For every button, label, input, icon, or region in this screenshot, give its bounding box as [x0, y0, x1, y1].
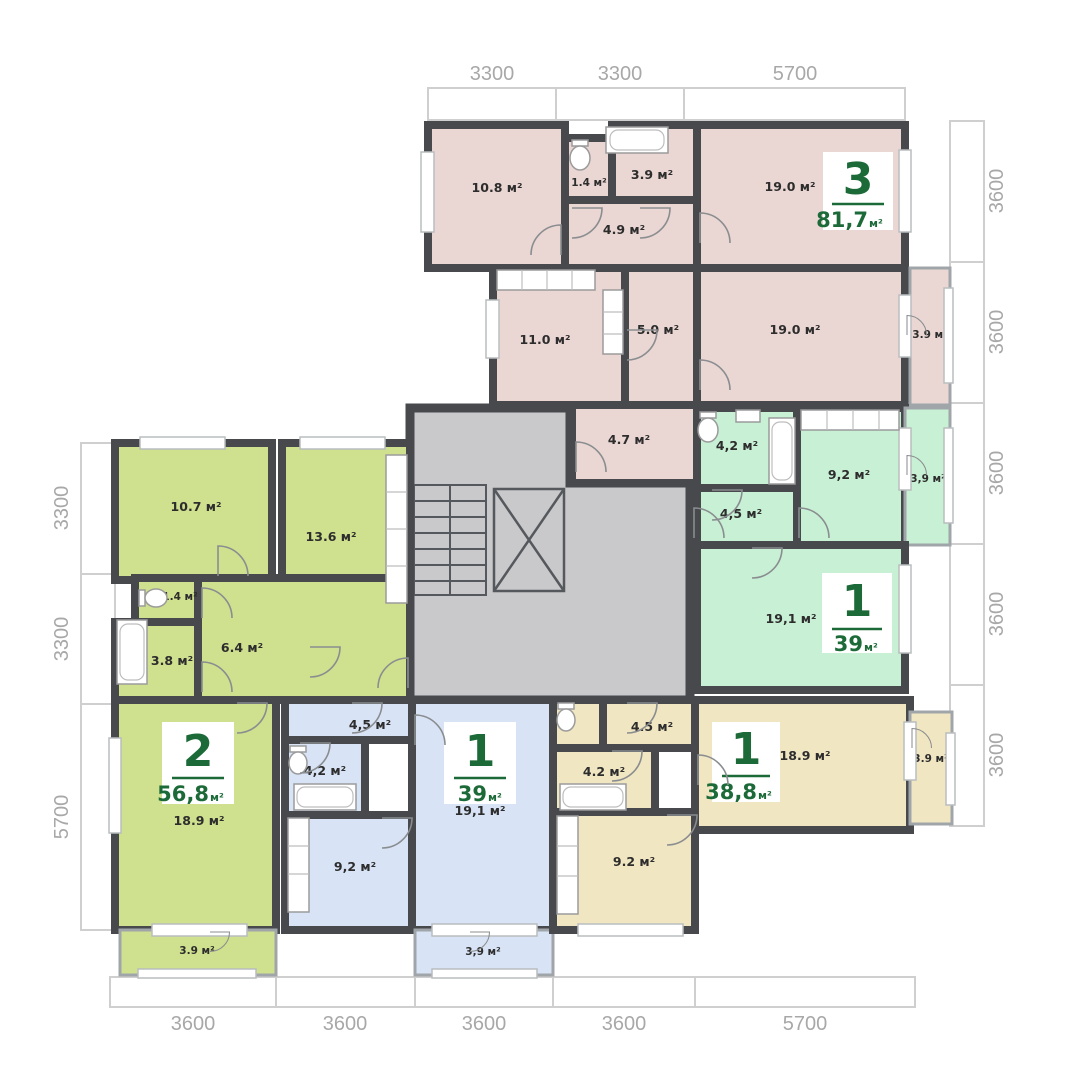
- toilet-icon: [557, 703, 575, 731]
- dimension-band-left: 3300 3300 5700: [51, 443, 115, 930]
- room-area-label: 3,9 м²: [910, 473, 946, 485]
- room-area-label: 3.9 м²: [179, 945, 215, 957]
- dim-band-rect: [428, 88, 905, 120]
- window-icon: [152, 924, 247, 936]
- dimension-label: 3600: [171, 1013, 216, 1035]
- room-area-label: 9,2 м²: [334, 859, 376, 874]
- bathtub-icon: [117, 620, 147, 684]
- room-area-label: 18.9 м²: [780, 748, 831, 763]
- room-area-label: 13.6 м²: [306, 529, 357, 544]
- sink-icon: [736, 410, 760, 422]
- apartment-badge: 1 38,8 м²: [705, 722, 780, 804]
- apartment-area: 56,8: [157, 782, 209, 806]
- room-area-label: 3.9 м²: [913, 753, 949, 765]
- bathtub-icon: [606, 127, 668, 153]
- kitchen-counter-icon: [801, 410, 899, 430]
- toilet-icon: [289, 746, 307, 774]
- apartment-number: 1: [731, 724, 762, 775]
- window-icon: [432, 924, 537, 936]
- bathtub-icon: [294, 784, 356, 810]
- apartment-number: 1: [842, 576, 873, 627]
- toilet-icon: [570, 140, 590, 170]
- window-icon: [578, 924, 683, 936]
- wardrobe-icon: [386, 455, 407, 603]
- dimension-label: 3300: [470, 63, 515, 85]
- dimension-label: 3600: [986, 310, 1008, 355]
- room-area-label: 18.9 м²: [174, 813, 225, 828]
- apartment-badge: 2 56,8 м²: [157, 722, 234, 806]
- dimension-band-right: 3600 3600 3600 3600 3600: [950, 121, 1008, 826]
- dimension-label: 3600: [986, 592, 1008, 637]
- room-area-label: 9.2 м²: [613, 854, 655, 869]
- kitchen-counter-icon: [557, 816, 578, 914]
- apartment-badge: 1 39 м²: [822, 573, 892, 656]
- bathtub-icon: [769, 418, 795, 484]
- room-area-label: 19,1 м²: [766, 611, 817, 626]
- window-icon: [944, 428, 953, 523]
- apartment-badge: 1 39 м²: [444, 722, 516, 806]
- window-icon: [109, 738, 121, 833]
- room-area-label: 4,2 м²: [716, 438, 758, 453]
- apartment-number: 1: [465, 726, 496, 777]
- floor-plan: 3300 3300 5700 3600 3600 3600 3600 3600 …: [0, 0, 1080, 1080]
- window-icon: [899, 428, 911, 490]
- room-area-label: 4,5 м²: [349, 717, 391, 732]
- room-area-label: 11.0 м²: [520, 332, 571, 347]
- room-area-label: 1.4 м²: [571, 177, 607, 189]
- room-rect: [428, 125, 565, 268]
- dimension-label: 5700: [51, 795, 73, 840]
- window-icon: [138, 969, 256, 978]
- apartment-area: 81,7: [816, 208, 868, 232]
- dimension-band-top: 3300 3300 5700: [428, 63, 905, 120]
- dim-band-rect: [81, 443, 115, 930]
- apartment-area-unit: м²: [869, 217, 883, 230]
- dim-band-rect: [950, 121, 984, 826]
- apartment-number: 2: [183, 726, 214, 777]
- window-icon: [421, 152, 434, 232]
- room-area-label: 3.8 м²: [151, 653, 193, 668]
- window-icon: [432, 969, 537, 978]
- dimension-label: 5700: [773, 63, 818, 85]
- dim-band-rect: [110, 977, 915, 1007]
- dimension-label: 3600: [602, 1013, 647, 1035]
- apartment-number: 3: [843, 154, 874, 205]
- kitchen-counter-icon: [288, 818, 309, 912]
- apartment-area-unit: м²: [758, 789, 772, 802]
- apartment-badge: 3 81,7 м²: [816, 152, 893, 232]
- room-area-label: 4,5 м²: [720, 506, 762, 521]
- dimension-label: 3600: [986, 451, 1008, 496]
- room-area-label: 3.9 м²: [631, 167, 673, 182]
- window-icon: [899, 565, 911, 653]
- dimension-label: 3600: [323, 1013, 368, 1035]
- apartment-area: 39: [834, 632, 863, 656]
- apartment-1-room-beige: 4.5 м² 4.2 м² 9.2 м² 18.9 м² 3.9 м² 1 38…: [553, 700, 952, 930]
- room-area-label: 9,2 м²: [828, 467, 870, 482]
- dimension-label: 3300: [51, 486, 73, 531]
- window-icon: [899, 295, 911, 357]
- room-area-label: 19.0 м²: [770, 322, 821, 337]
- window-icon: [899, 150, 911, 232]
- room-area-label: 4.9 м²: [603, 222, 645, 237]
- dimension-band-bottom: 3600 3600 3600 3600 5700: [110, 977, 915, 1035]
- room-area-label: 4.2 м²: [583, 764, 625, 779]
- room-area-label: 3.9 м²: [912, 329, 948, 341]
- dimension-label: 3600: [462, 1013, 507, 1035]
- toilet-icon: [698, 412, 718, 442]
- apartment-area: 38,8: [705, 780, 757, 804]
- room-rect: [565, 138, 612, 200]
- apartment-area-unit: м²: [488, 791, 502, 804]
- window-icon: [944, 288, 953, 383]
- apartment-area-unit: м²: [210, 791, 224, 804]
- window-icon: [300, 437, 385, 449]
- bathtub-icon: [560, 784, 626, 810]
- dimension-label: 3600: [986, 733, 1008, 778]
- apartment-area: 39: [458, 782, 487, 806]
- dimension-label: 3300: [51, 617, 73, 662]
- window-icon: [904, 722, 916, 780]
- dimension-label: 3600: [986, 169, 1008, 214]
- room-area-label: 4.7 м²: [608, 432, 650, 447]
- window-icon: [486, 300, 499, 358]
- room-area-label: 10.7 м²: [171, 499, 222, 514]
- apartment-area-unit: м²: [864, 641, 878, 654]
- room-area-label: 6.4 м²: [221, 640, 263, 655]
- toilet-icon: [139, 589, 167, 607]
- dimension-label: 3300: [598, 63, 643, 85]
- room-area-label: 19.0 м²: [765, 179, 816, 194]
- window-icon: [946, 733, 955, 805]
- floorplan-canvas: 3300 3300 5700 3600 3600 3600 3600 3600 …: [0, 0, 1080, 1080]
- apartment-1-room-mint: 4,2 м² 4,5 м² 9,2 м² 3,9 м² 19,1 м² 1 39…: [697, 408, 950, 690]
- dimension-label: 5700: [783, 1013, 828, 1035]
- room-area-label: 10.8 м²: [472, 180, 523, 195]
- window-icon: [140, 437, 225, 449]
